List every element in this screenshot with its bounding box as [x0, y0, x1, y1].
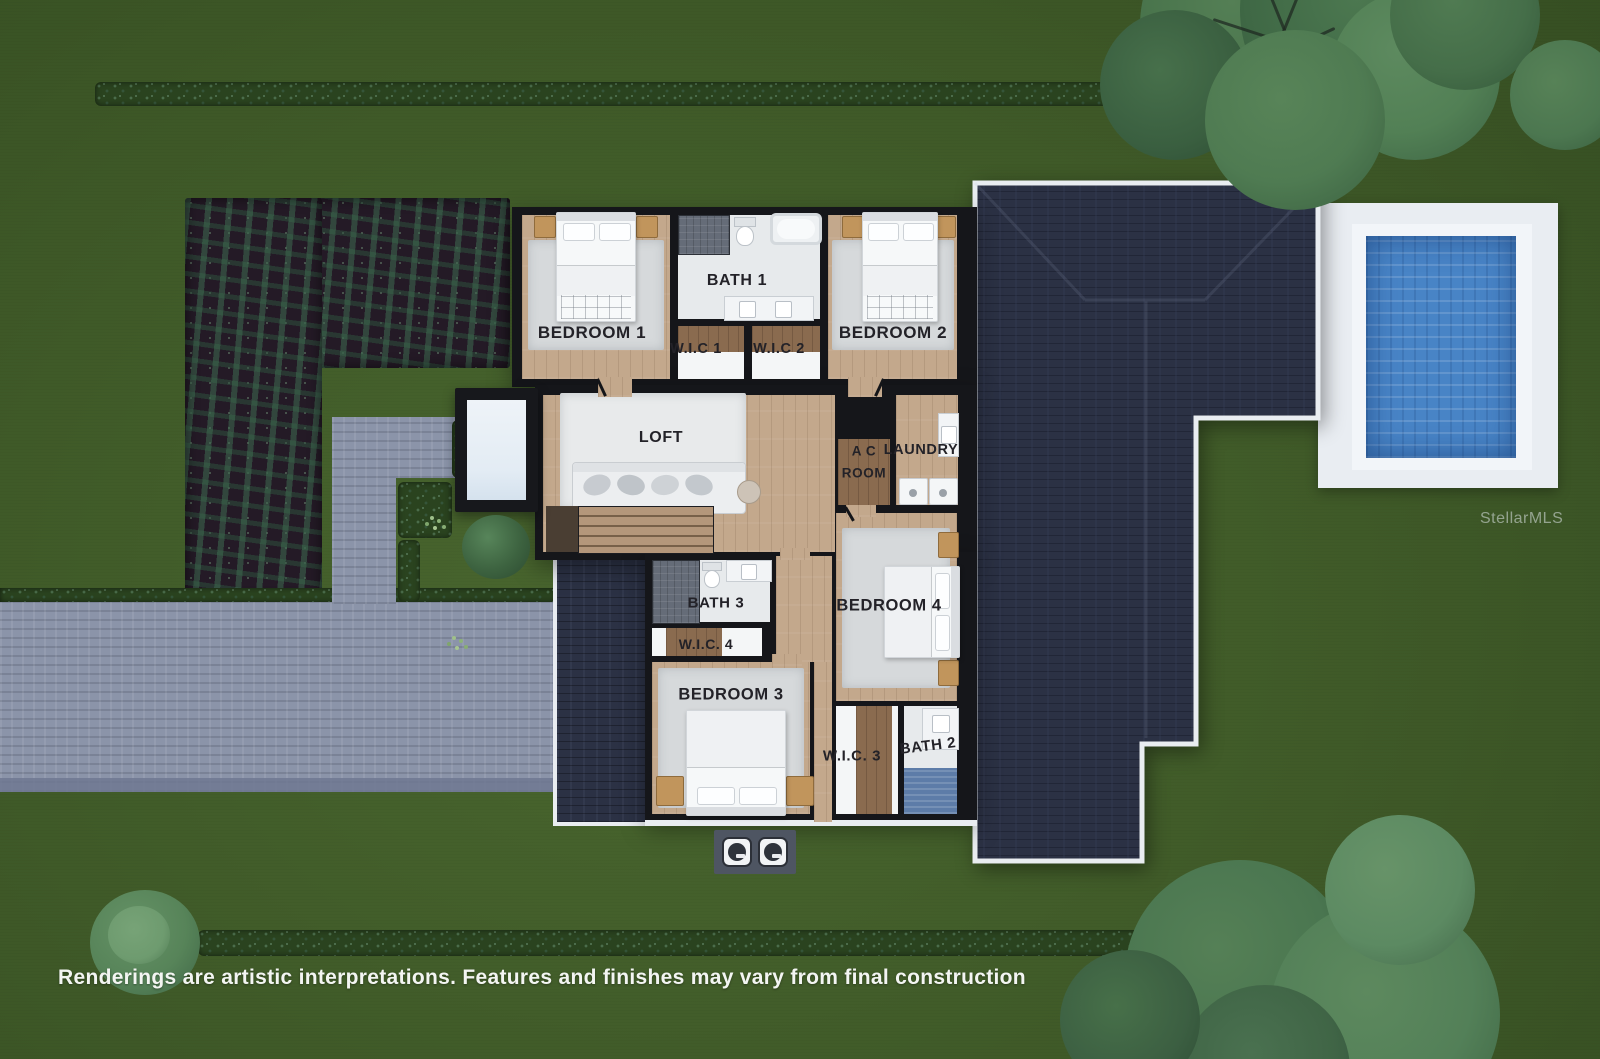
ac-condenser-pad [714, 830, 796, 874]
cushion [615, 472, 647, 497]
toilet-icon [702, 562, 720, 588]
disclaimer-text: Renderings are artistic interpretations.… [58, 966, 1026, 990]
bedroom3-bed [686, 710, 786, 816]
sink [932, 715, 950, 733]
nightstand [656, 776, 684, 806]
entry-skylight [455, 388, 538, 512]
dryer-icon [929, 478, 958, 505]
nightstand [534, 216, 556, 238]
bath2-rug [904, 768, 957, 814]
cushion [581, 471, 614, 499]
nightstand [938, 532, 959, 558]
room-label-wic-3: W.I.C. 3 [823, 748, 881, 765]
nightstand [938, 660, 959, 686]
ac-unit-icon [758, 837, 788, 867]
cushion [650, 473, 681, 497]
pillow [599, 223, 631, 241]
bathtub [770, 213, 822, 245]
hall-floor-lower [814, 662, 832, 822]
stellar-mls-watermark: StellarMLS [1480, 510, 1563, 528]
room-label-wic-4: W.I.C. 4 [679, 636, 734, 652]
ac-room-label-line2: ROOM [842, 465, 886, 480]
bath3-vanity [726, 560, 772, 582]
room-label-bath-1: BATH 1 [707, 272, 767, 290]
ac-room-label-line1: A C [852, 443, 877, 458]
room-label-bedroom-3: BEDROOM 3 [678, 686, 783, 705]
washer-icon [899, 478, 928, 505]
door-opening [772, 654, 802, 666]
pillow [935, 615, 950, 651]
bath1-vanity [724, 296, 814, 321]
nightstand [842, 216, 864, 238]
loft-side-table [737, 480, 761, 504]
cushion [683, 472, 715, 499]
pillow [903, 223, 934, 241]
pillow [739, 787, 777, 805]
bedroom2-bed [862, 212, 938, 322]
ac-unit-icon [722, 837, 752, 867]
room-label-bedroom-1: BEDROOM 1 [538, 323, 646, 343]
pillow [868, 223, 899, 241]
pillow [697, 787, 735, 805]
hall-floor-upper [776, 556, 832, 662]
sink [775, 301, 792, 318]
door-opening [780, 548, 810, 560]
pillow [563, 223, 595, 241]
room-label-bedroom-4: BEDROOM 4 [836, 597, 941, 616]
room-label-bath-3: BATH 3 [688, 595, 745, 612]
staircase [578, 506, 714, 554]
room-label-loft: LOFT [639, 429, 683, 447]
bedroom1-bed [556, 212, 636, 322]
floor-plan-rendering: BEDROOM 1 BATH 1 W.I.C 1 W.I.C 2 BEDROOM… [0, 0, 1600, 1059]
nightstand [636, 216, 658, 238]
toilet-icon [734, 217, 754, 245]
stair-landing [546, 506, 578, 552]
room-label-ac-room: A C ROOM [842, 440, 886, 483]
sink [739, 301, 756, 318]
room-label-laundry: LAUNDRY [884, 442, 959, 458]
shower [652, 560, 700, 624]
shower [678, 215, 730, 255]
house-fascia-bottom [645, 820, 977, 826]
shrub [462, 515, 530, 579]
lower-roof [553, 551, 645, 826]
room-label-bedroom-2: BEDROOM 2 [839, 323, 947, 343]
nightstand [786, 776, 814, 806]
sink [741, 564, 757, 580]
room-label-wic-2: W.I.C 2 [753, 341, 805, 357]
room-label-wic-1: W.I.C 1 [670, 341, 722, 357]
